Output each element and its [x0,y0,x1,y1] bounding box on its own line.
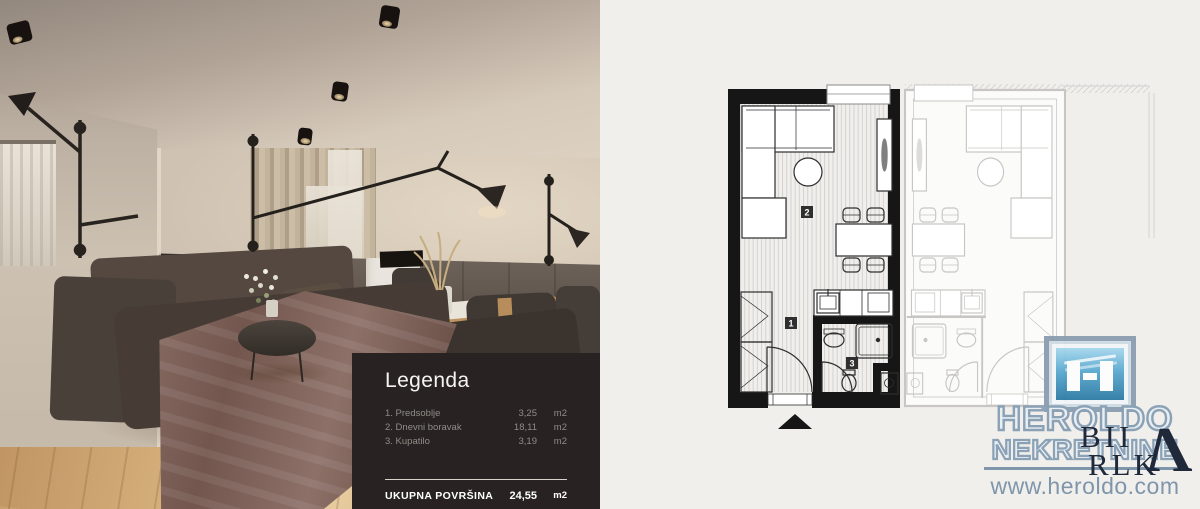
brand-logo-block: HEROLDO NEKRETNINE www.heroldo.com BII R… [980,334,1195,509]
room-label-living: 2 [804,208,809,218]
dry-plant-stems [414,232,460,290]
room-area-unit: m2 [537,421,567,435]
legend-rows: 1. Predsoblje 3,25 m2 2. Dnevni boravak … [385,407,567,449]
legend-row: 1. Predsoblje 3,25 m2 [385,407,567,421]
watermark-glyph: Λ [1140,420,1193,480]
total-label: UKUPNA POVRŠINA [385,490,497,502]
logo-h-glyph [1067,361,1113,391]
logo-h-bar [1100,361,1113,391]
legend-row: 3. Kupatilo 3,19 m2 [385,435,567,449]
window [827,85,890,104]
listing-image: 2 1 3 Legenda 1. Predsoblje 3,25 m2 2. D… [0,0,1200,509]
articulated-lamp-icon [8,92,138,258]
room-area: 3,19 [503,435,537,449]
context-walls [1062,86,1154,238]
legend-total-row: UKUPNA POVRŠINA 24,55 m2 [385,490,567,502]
room-label-bath: 3 [849,359,854,369]
legend-title: Legenda [385,369,600,393]
legend-panel: Legenda 1. Predsoblje 3,25 m2 2. Dnevni … [352,353,600,509]
entrance-arrow-icon [778,414,812,429]
logo-inner-square [1052,344,1128,404]
room-name: 2. Dnevni boravak [385,421,503,435]
legend-row: 2. Dnevni boravak 18,11 m2 [385,421,567,435]
total-value: 24,55 [497,490,537,502]
articulated-lamp-icon [546,174,591,266]
room-name: 1. Predsoblje [385,407,503,421]
room-area: 3,25 [503,407,537,421]
room-label-hall: 1 [788,319,793,329]
articulated-lamp-icon [249,134,506,252]
total-unit: m2 [537,490,567,502]
floor-plan-unit-left: 2 1 3 [728,85,900,429]
room-name: 3. Kupatilo [385,435,503,449]
room-area-unit: m2 [537,435,567,449]
room-area: 18,11 [503,421,537,435]
logo-h-bar [1067,361,1080,391]
legend-divider [385,479,567,480]
serif-watermark: BII RLK Λ [1080,424,1190,480]
room-area-unit: m2 [537,407,567,421]
logo-h-mid [1083,373,1097,380]
